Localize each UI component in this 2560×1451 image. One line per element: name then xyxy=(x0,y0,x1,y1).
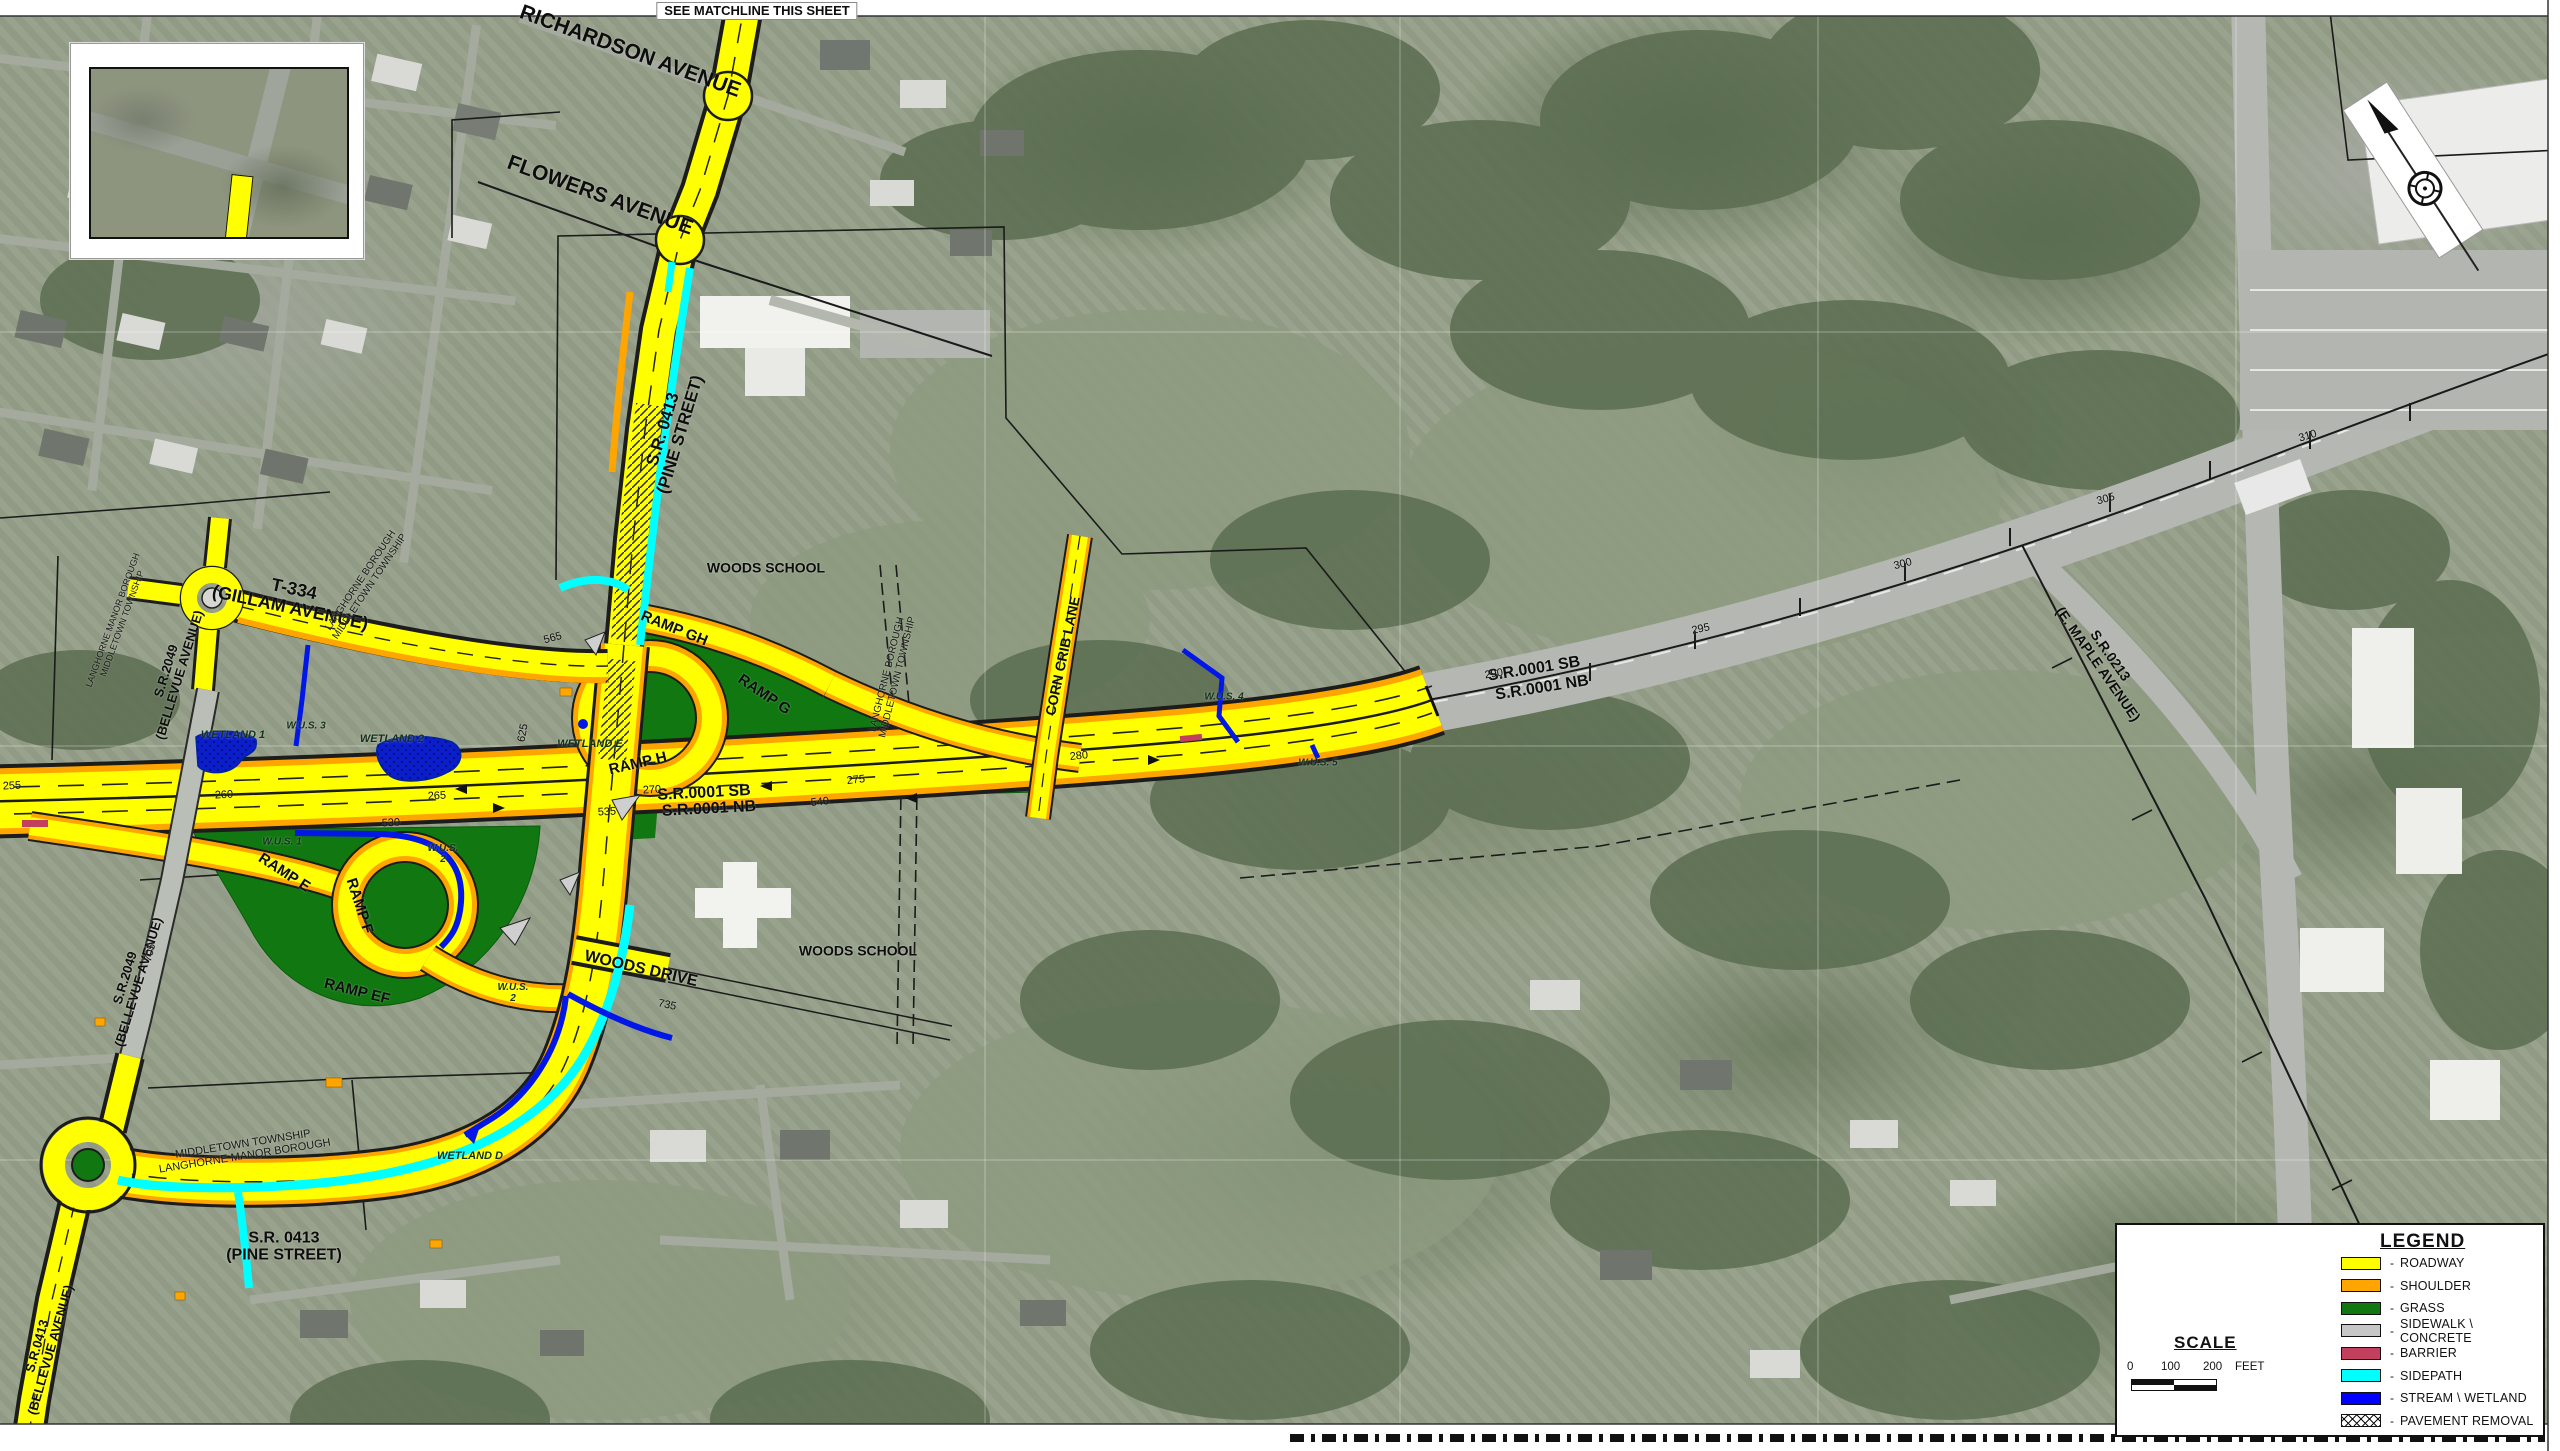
pavement-removal-hatch xyxy=(612,660,622,760)
legend-dash: - xyxy=(2390,1301,2394,1315)
legend-dash: - xyxy=(2390,1369,2394,1383)
legend-item-label: SIDEWALK \ CONCRETE xyxy=(2400,1317,2543,1345)
legend-dash: - xyxy=(2390,1279,2394,1293)
legend-dash: - xyxy=(2390,1324,2394,1338)
legend-swatch xyxy=(2341,1279,2381,1292)
legend-item: -STREAM \ WETLAND xyxy=(2341,1387,2543,1410)
legend-dash: - xyxy=(2390,1391,2394,1405)
legend-dash: - xyxy=(2390,1414,2394,1428)
legend-title: LEGEND xyxy=(2380,1231,2465,1253)
scale-tick: 100 xyxy=(2161,1361,2180,1373)
legend-item-label: PAVEMENT REMOVAL xyxy=(2400,1414,2534,1428)
legend-item: -SIDEPATH xyxy=(2341,1365,2543,1388)
legend-swatch xyxy=(2341,1347,2381,1360)
main-roundabout xyxy=(26,1118,135,1451)
legend-swatch xyxy=(2341,1414,2381,1427)
scale-block: SCALE 0100200FEET xyxy=(2117,1321,2317,1421)
inset-key-map xyxy=(70,43,364,259)
legend-item: -BARRIER xyxy=(2341,1342,2543,1365)
legend-items: -ROADWAY-SHOULDER-GRASS-SIDEWALK \ CONCR… xyxy=(2341,1252,2543,1432)
inset-aerial xyxy=(89,67,349,239)
legend-item-label: SIDEPATH xyxy=(2400,1369,2462,1383)
scale-unit: FEET xyxy=(2235,1361,2264,1373)
inset-highlight-road xyxy=(225,174,254,239)
ramp-ef xyxy=(428,958,572,998)
legend-item: -ROADWAY xyxy=(2341,1252,2543,1275)
legend-dash: - xyxy=(2390,1256,2394,1270)
legend-dash: - xyxy=(2390,1346,2394,1360)
legend-swatch xyxy=(2341,1257,2381,1270)
legend-swatch xyxy=(2341,1302,2381,1315)
gillam-avenue xyxy=(238,606,608,680)
legend-swatch xyxy=(2341,1369,2381,1382)
roadway-plan-map: SEE MATCHLINE THIS SHEETRICHARDSON AVENU… xyxy=(0,0,2560,1451)
bellevue-avenue-north xyxy=(112,690,208,1130)
legend-item-label: ROADWAY xyxy=(2400,1256,2465,1270)
legend-box: LEGEND -ROADWAY-SHOULDER-GRASS-SIDEWALK … xyxy=(2115,1223,2545,1437)
legend-swatch xyxy=(2341,1324,2381,1337)
legend-item-label: BARRIER xyxy=(2400,1346,2457,1360)
scale-tick: 200 xyxy=(2203,1361,2222,1373)
scale-tick: 0 xyxy=(2127,1361,2133,1373)
legend-item: -SHOULDER xyxy=(2341,1275,2543,1298)
legend-item: -PAVEMENT REMOVAL xyxy=(2341,1410,2543,1433)
legend-item-label: STREAM \ WETLAND xyxy=(2400,1391,2527,1405)
legend-item: -SIDEWALK \ CONCRETE xyxy=(2341,1320,2543,1343)
legend-item-label: GRASS xyxy=(2400,1301,2445,1315)
legend-swatch xyxy=(2341,1392,2381,1405)
legend-item-label: SHOULDER xyxy=(2400,1279,2471,1293)
scale-bar xyxy=(2131,1379,2217,1391)
scale-title: SCALE xyxy=(2174,1333,2237,1353)
